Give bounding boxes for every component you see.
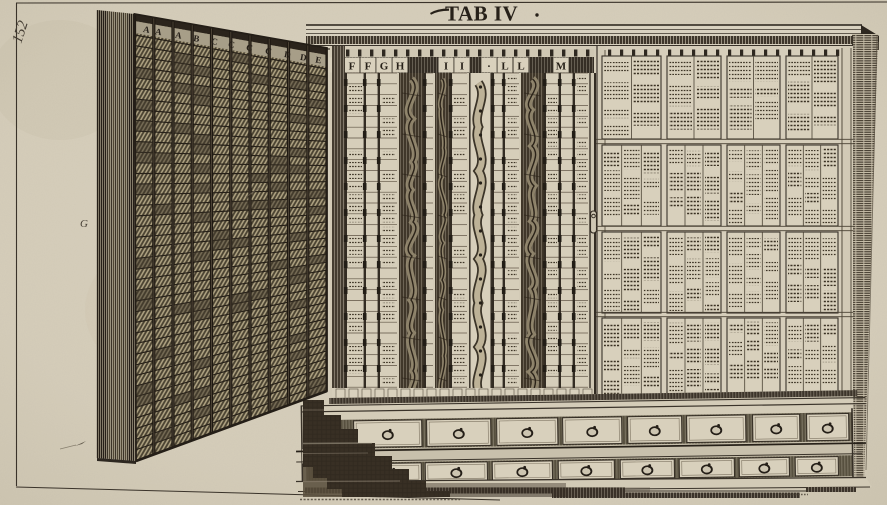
svg-text:G: G	[380, 61, 389, 73]
svg-text:·: ·	[487, 61, 491, 73]
svg-text:I: I	[444, 61, 448, 73]
svg-text:L: L	[501, 61, 508, 73]
svg-text:I: I	[460, 61, 464, 73]
svg-text:L: L	[517, 61, 524, 73]
svg-text:M: M	[556, 61, 567, 73]
svg-text:F: F	[349, 61, 356, 73]
svg-text:F: F	[365, 61, 372, 73]
svg-text:H: H	[396, 61, 405, 73]
svg-text:G: G	[80, 218, 88, 230]
svg-text:TAB IV: TAB IV	[445, 2, 518, 26]
